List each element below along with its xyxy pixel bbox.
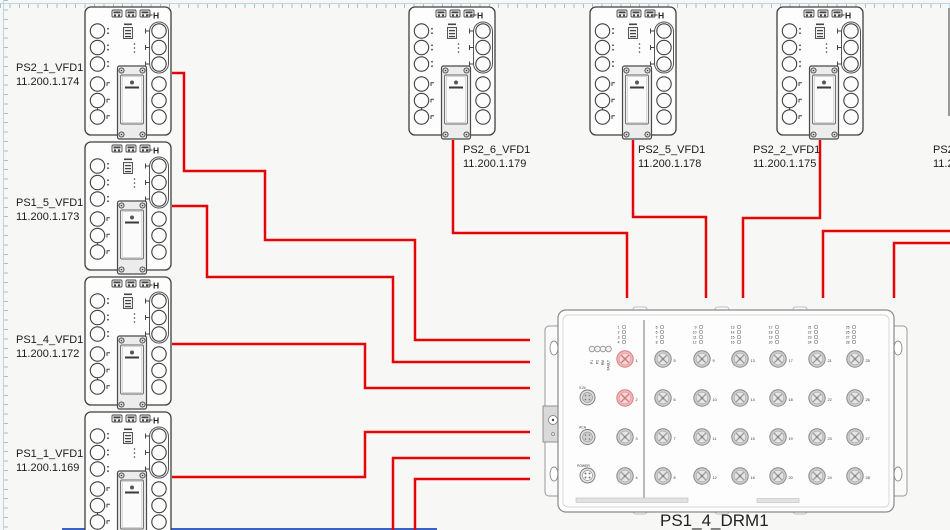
port-legend-number: 17: [769, 325, 773, 329]
drm-port-number: 4: [636, 476, 638, 480]
device-name: PS2_6_VFD1: [463, 143, 530, 157]
port-legend-led: [699, 330, 702, 333]
diagram-canvas: H: [0, 0, 950, 530]
device-ip: 11.200.1.175: [753, 157, 820, 171]
port-legend-led: [622, 325, 625, 328]
device-name: PS2_1_VFD1: [16, 61, 83, 75]
port-legend-number: 10: [693, 330, 697, 334]
port-legend-number: 12: [693, 340, 697, 344]
vfd-device-ps2-1[interactable]: [84, 6, 172, 146]
port-legend-led: [699, 340, 702, 343]
device-label[interactable]: PS2_ 11.2: [933, 143, 950, 171]
device-ip: 11.200.1.174: [16, 75, 83, 89]
connection-wire-PS1_4_VFD1[interactable]: [172, 344, 530, 388]
device-label[interactable]: PS2_6_VFD1 11.200.1.179: [463, 143, 530, 171]
drm-port-number: 19: [789, 437, 793, 441]
port-legend-number: 1: [618, 325, 620, 329]
led-label-rm: RM: [601, 360, 605, 365]
drm-port-number: 27: [866, 437, 870, 441]
drm-port-number: 6: [674, 398, 676, 402]
drm-port-number: 15: [751, 437, 755, 441]
drm-port-number: 9: [713, 359, 715, 363]
device-name: PS1_4_VFD1: [16, 333, 83, 347]
device-label[interactable]: PS2_2_VFD1 11.200.1.175: [753, 143, 820, 171]
connection-wire-off-screen-bottom[interactable]: [415, 479, 530, 530]
port-legend-number: 21: [808, 325, 812, 329]
bottom-vent-strip: [576, 498, 688, 503]
led-label-p1: P1: [590, 360, 594, 364]
port-legend-led: [814, 335, 817, 338]
port-legend-led: [660, 330, 663, 333]
port-legend-led: [660, 325, 663, 328]
port-legend-number: 22: [808, 330, 812, 334]
led-label-fault: FAULT: [607, 360, 611, 370]
port-legend-led: [852, 325, 855, 328]
port-legend-number: 8: [656, 340, 658, 344]
port-legend-number: 23: [808, 335, 812, 339]
drm-port-number: 20: [789, 476, 793, 480]
device-ip: 11.200.1.173: [16, 210, 83, 224]
drm-port-number: 14: [751, 398, 755, 402]
port-legend-led: [622, 330, 625, 333]
drm-port-number: 8: [674, 476, 676, 480]
drm-port-number: 7: [674, 437, 676, 441]
port-legend-led: [737, 330, 740, 333]
device-ip: 11.200.1.169: [16, 461, 83, 475]
drm-port-number: 10: [713, 398, 717, 402]
vfd-device-ps1-1[interactable]: [84, 411, 172, 530]
port-legend-number: 25: [846, 325, 850, 329]
drm-port-number: 23: [828, 437, 832, 441]
connection-wire-PS1_1_VFD1[interactable]: [172, 432, 530, 477]
port-legend-led: [622, 335, 625, 338]
device-name: PS2_5_VFD1: [638, 143, 705, 157]
port-legend-number: 5: [656, 325, 658, 329]
port-legend-led: [852, 340, 855, 343]
drm-port-number: 12: [713, 476, 717, 480]
vfd-device-ps2-2[interactable]: [776, 6, 864, 146]
port-legend-number: 19: [769, 335, 773, 339]
port-legend-led: [775, 340, 778, 343]
drm-port-number: 28: [866, 476, 870, 480]
port-legend-number: 11: [693, 335, 697, 339]
drm-port-number: 5: [674, 359, 676, 363]
port-legend-led: [775, 330, 778, 333]
drm-port-number: 17: [789, 359, 793, 363]
connection-wire-off-screen-right[interactable]: [894, 243, 950, 298]
drm-port-number: 18: [789, 398, 793, 402]
port-legend-led: [814, 330, 817, 333]
port-legend-number: 4: [618, 340, 620, 344]
device-label[interactable]: PS1_5_VFD1 11.200.1.173: [16, 196, 83, 224]
drm-port-number: 24: [828, 476, 832, 480]
drm-port-number: 21: [828, 359, 832, 363]
port-legend-number: 3: [618, 335, 620, 339]
port-legend-number: 15: [731, 335, 735, 339]
port-legend-number: 6: [656, 330, 658, 334]
port-legend-led: [737, 340, 740, 343]
svg-text:ACA: ACA: [579, 426, 587, 430]
vfd-device-ps2-5[interactable]: [589, 6, 677, 146]
port-legend-led: [660, 340, 663, 343]
drm-port-number: 13: [751, 359, 755, 363]
drm-port-number: 25: [866, 359, 870, 363]
port-legend-number: 14: [731, 330, 735, 334]
port-legend-led: [775, 335, 778, 338]
drm-port-number: 16: [751, 476, 755, 480]
port-legend-number: 20: [769, 340, 773, 344]
device-label[interactable]: PS1_4_VFD1 11.200.1.172: [16, 333, 83, 361]
connection-wire-PS1_5_VFD1[interactable]: [172, 206, 530, 362]
device-ip: 11.200.1.178: [638, 157, 705, 171]
bottom-vent-strip: [757, 499, 799, 503]
device-ip: 11.200.1.172: [16, 347, 83, 361]
port-legend-led: [699, 325, 702, 328]
device-label[interactable]: PS2_5_VFD1 11.200.1.178: [638, 143, 705, 171]
drm-port-number: 1: [636, 359, 638, 363]
vfd-device-ps2-6[interactable]: [408, 6, 496, 146]
port-legend-led: [622, 340, 625, 343]
device-label[interactable]: PS1_1_VFD1 11.200.1.169: [16, 447, 83, 475]
port-legend-led: [814, 325, 817, 328]
port-legend-led: [852, 335, 855, 338]
port-legend-number: 13: [731, 325, 735, 329]
device-name: PS2_: [933, 143, 950, 157]
port-legend-number: 7: [656, 335, 658, 339]
port-legend-number: 16: [731, 340, 735, 344]
connection-wire-off-screen-bottom[interactable]: [393, 458, 530, 530]
svg-text:V.24: V.24: [579, 386, 586, 390]
port-legend-led: [775, 325, 778, 328]
port-legend-led: [660, 335, 663, 338]
device-ip: 11.2: [933, 157, 950, 171]
device-ip: 11.200.1.179: [463, 157, 530, 171]
port-legend-led: [737, 325, 740, 328]
drm-port-number: 22: [828, 398, 832, 402]
connection-wire-off-screen-right[interactable]: [823, 231, 950, 298]
drm-port-number: 11: [713, 437, 717, 441]
drm-port-number: 3: [636, 437, 638, 441]
port-legend-number: 28: [846, 340, 850, 344]
drm-port-number: 26: [866, 398, 870, 402]
port-legend-led: [852, 330, 855, 333]
port-legend-number: 26: [846, 330, 850, 334]
led-label-p2: P2: [596, 360, 600, 364]
device-name: PS1_5_VFD1: [16, 196, 83, 210]
device-label[interactable]: PS1_4_DRM1: [660, 511, 769, 530]
port-legend-number: 9: [695, 325, 697, 329]
vfd-device-ps1-4[interactable]: [84, 276, 172, 416]
vfd-device-ps1-5[interactable]: [84, 141, 172, 281]
device-name: PS2_2_VFD1: [753, 143, 820, 157]
port-legend-led: [737, 335, 740, 338]
port-legend-number: 18: [769, 330, 773, 334]
device-name: PS1_1_VFD1: [16, 447, 83, 461]
port-legend-number: 27: [846, 335, 850, 339]
device-label[interactable]: PS2_1_VFD1 11.200.1.174: [16, 61, 83, 89]
port-legend-number: 2: [618, 330, 620, 334]
port-legend-number: 24: [808, 340, 812, 344]
svg-text:POWER: POWER: [577, 464, 590, 468]
port-legend-led: [699, 335, 702, 338]
drm-device-ps1-4[interactable]: P1 P2 RM FAULT V.24 ACA POWER 1122334455…: [542, 308, 910, 514]
port-legend-led: [814, 340, 817, 343]
drm-port-number: 2: [636, 398, 638, 402]
